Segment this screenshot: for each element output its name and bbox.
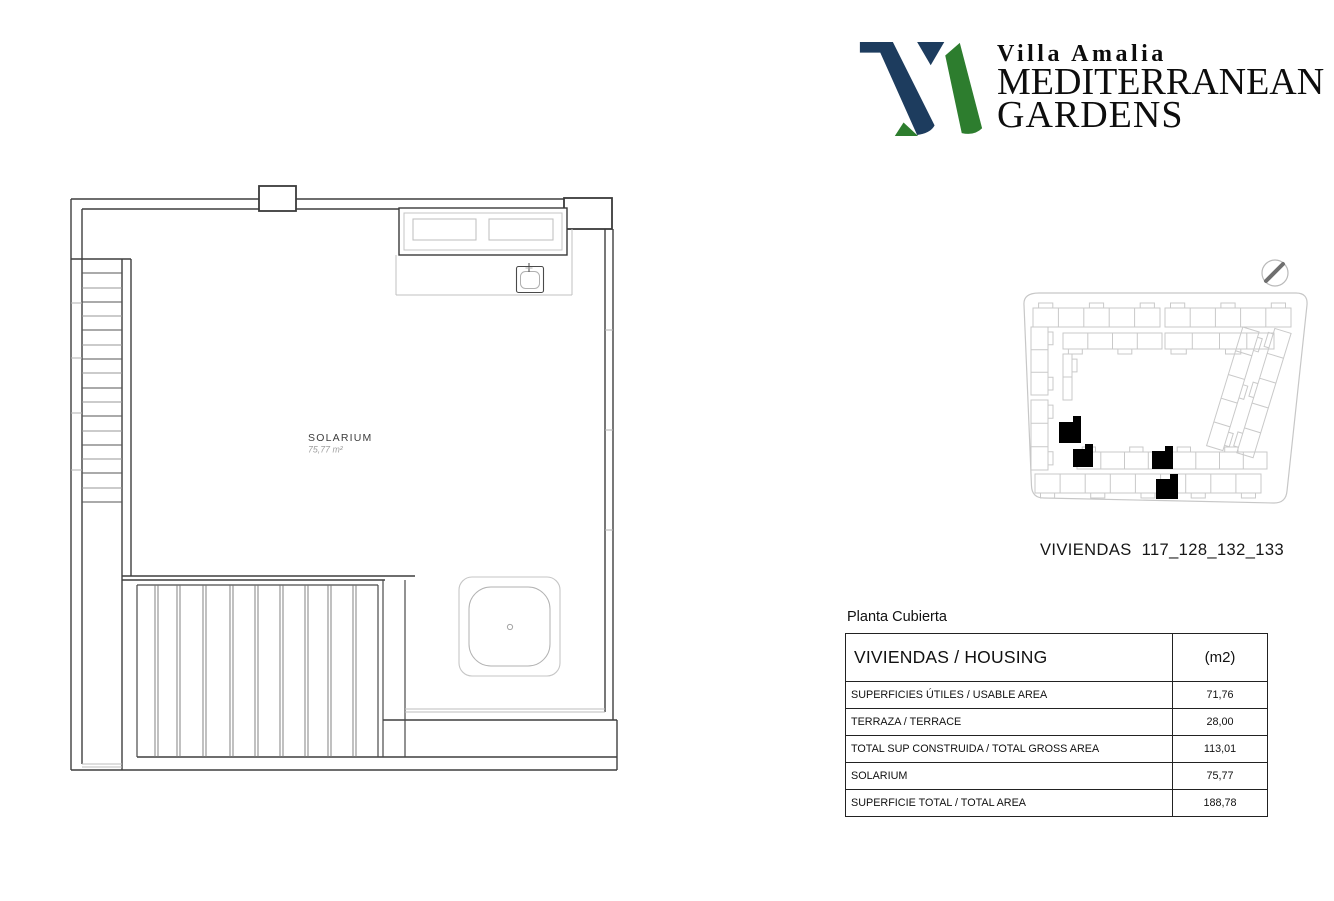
row-value: 188,78 bbox=[1173, 790, 1267, 816]
highlighted-unit bbox=[1152, 446, 1173, 469]
row-label: SUPERFICIES ÚTILES / USABLE AREA bbox=[846, 682, 1173, 708]
pergola bbox=[399, 208, 567, 255]
table-row: SOLARIUM75,77 bbox=[846, 762, 1267, 789]
deck bbox=[137, 580, 405, 757]
row-value: 113,01 bbox=[1173, 736, 1267, 762]
north-compass-icon bbox=[1262, 260, 1288, 286]
roof-access-block bbox=[564, 198, 612, 229]
logo-navy-stroke bbox=[860, 42, 935, 135]
logo-green-stroke bbox=[945, 43, 982, 134]
brand-logo-icon bbox=[856, 40, 986, 137]
table-row: SUPERFICIE TOTAL / TOTAL AREA188,78 bbox=[846, 789, 1267, 816]
row-label: SUPERFICIE TOTAL / TOTAL AREA bbox=[846, 790, 1173, 816]
floor-plan: SOLARIUM 75,77 m² bbox=[55, 170, 635, 790]
table-header-row: VIVIENDAS / HOUSING (m2) bbox=[846, 634, 1267, 682]
site-boundary bbox=[1024, 293, 1307, 503]
table-row: SUPERFICIES ÚTILES / USABLE AREA71,76 bbox=[846, 682, 1267, 708]
deck-slats bbox=[155, 585, 356, 757]
stairs bbox=[82, 273, 122, 502]
room-area: 75,77 m² bbox=[308, 445, 344, 455]
sink-icon bbox=[517, 263, 544, 293]
table-title: Planta Cubierta bbox=[847, 609, 947, 625]
highlighted-unit bbox=[1059, 416, 1081, 443]
table-header-housing: VIVIENDAS / HOUSING bbox=[846, 634, 1173, 681]
row-label: TOTAL SUP CONSTRUIDA / TOTAL GROSS AREA bbox=[846, 736, 1173, 762]
table-row: TOTAL SUP CONSTRUIDA / TOTAL GROSS AREA1… bbox=[846, 735, 1267, 762]
areas-table: VIVIENDAS / HOUSING (m2) SUPERFICIES ÚTI… bbox=[845, 633, 1268, 817]
table-header-unit: (m2) bbox=[1173, 634, 1267, 681]
site-plan-map bbox=[1015, 248, 1315, 510]
table-row: TERRAZA / TERRACE28,00 bbox=[846, 708, 1267, 735]
row-value: 75,77 bbox=[1173, 763, 1267, 789]
row-label: SOLARIUM bbox=[846, 763, 1173, 789]
row-value: 28,00 bbox=[1173, 709, 1267, 735]
table-body: SUPERFICIES ÚTILES / USABLE AREA71,76TER… bbox=[846, 682, 1267, 816]
room-label: SOLARIUM bbox=[308, 432, 372, 444]
row-value: 71,76 bbox=[1173, 682, 1267, 708]
row-label: TERRAZA / TERRACE bbox=[846, 709, 1173, 735]
jacuzzi bbox=[459, 577, 560, 676]
chimney bbox=[259, 186, 296, 211]
highlighted-units bbox=[1059, 416, 1178, 499]
brand-line-3: GARDENS bbox=[997, 99, 1324, 132]
units-caption: VIVIENDAS 117_128_132_133 bbox=[1040, 541, 1284, 560]
logo-navy-wedge bbox=[917, 42, 944, 65]
walkway-edge bbox=[82, 709, 605, 767]
brand-name: Villa Amalia MEDITERRANEAN GARDENS bbox=[997, 42, 1324, 132]
brochure-page: Villa Amalia MEDITERRANEAN GARDENS bbox=[0, 0, 1334, 901]
highlighted-unit bbox=[1156, 474, 1178, 499]
wall-joint-marks bbox=[71, 303, 613, 530]
